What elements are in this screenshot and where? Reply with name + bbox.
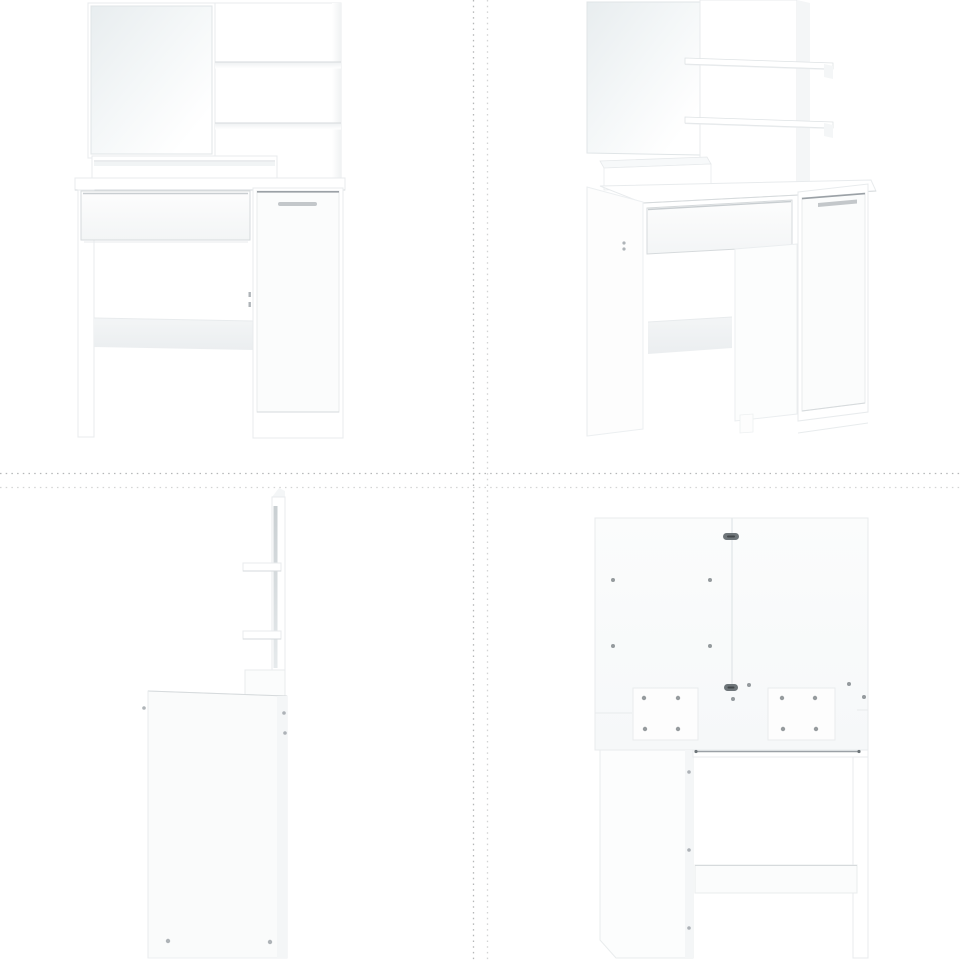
vanity-angled-view-image: [480, 0, 960, 480]
cabinet-door: [802, 193, 865, 411]
vanity-front-view-image: [0, 0, 480, 480]
stretcher-footrest: [94, 318, 253, 350]
table: [75, 178, 345, 438]
stretcher-footrest: [648, 317, 732, 354]
drawer: [81, 191, 250, 242]
shelf-end-cap: [824, 123, 833, 138]
base: [600, 750, 868, 958]
quadrant-angled-view: [480, 0, 960, 480]
shelf-lower: [215, 123, 341, 130]
mounting-plate-left: [633, 688, 698, 740]
vanity-back-view-image: [480, 480, 960, 960]
cam-lock-pins: [249, 292, 251, 307]
cabinet-door: [257, 191, 339, 412]
cabinet-side-panel: [735, 244, 797, 421]
right-leg: [853, 757, 868, 958]
product-image-grid: [0, 0, 960, 960]
shelf-lower-side: [243, 631, 281, 639]
vanity-side-view-image: [0, 480, 480, 960]
keyhole-hanger-middle: [724, 684, 738, 691]
cabinet-foot: [740, 414, 753, 433]
shelf-unit-side-panel: [797, 0, 810, 184]
table: [587, 180, 876, 436]
shelf-unit-back-panel: [700, 0, 797, 184]
mirror: [91, 6, 212, 154]
quadrant-side-view: [0, 480, 480, 960]
door-handle: [278, 202, 317, 206]
tabletop-back-rail: [693, 750, 868, 757]
shelf-end-cap: [824, 64, 833, 79]
mounting-plate-right: [768, 688, 835, 740]
cabinet-back-panel: [600, 750, 693, 958]
mirror-upright: [272, 488, 285, 697]
ledge-side: [245, 670, 285, 697]
hutch: [88, 3, 341, 183]
mirror: [587, 2, 700, 155]
hutch: [587, 0, 833, 190]
table-body: [142, 691, 287, 958]
left-side-panel: [587, 187, 643, 436]
back-panel: [595, 518, 868, 750]
keyhole-hanger-top: [723, 533, 739, 540]
quadrant-back-view: [480, 480, 960, 960]
shelf-upper: [215, 62, 341, 69]
shelf-upper-side: [243, 563, 281, 571]
mirror-edge: [274, 506, 278, 668]
cabinet: [253, 188, 343, 438]
shelf-unit-side-panel: [332, 3, 341, 183]
stretcher-back: [695, 865, 857, 893]
quadrant-front-view: [0, 0, 480, 480]
